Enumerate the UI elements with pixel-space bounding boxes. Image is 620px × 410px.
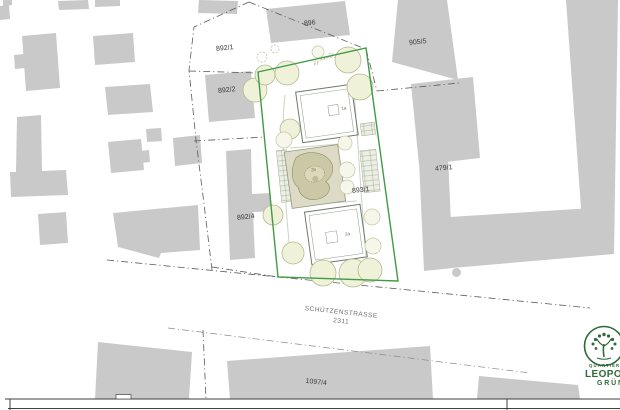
building-footprint (95, 342, 192, 399)
tree-icon (335, 47, 361, 73)
courtyard-garden: 2b (284, 145, 345, 209)
building-footprint (14, 54, 25, 69)
building-footprint (0, 5, 10, 20)
logo-word-quartier: QUARTIER (589, 363, 620, 368)
building-footprint-479-1 (419, 157, 453, 271)
building-footprint (38, 212, 68, 245)
parking-strip (360, 122, 375, 136)
building-footprint-479-1 (411, 77, 480, 165)
tree-icon (365, 238, 381, 254)
building-footprint (146, 128, 162, 142)
tree-icon (339, 162, 355, 178)
building-footprint (140, 150, 150, 163)
building-footprint (3, 0, 12, 6)
tree-icon (364, 209, 380, 225)
tree-icon (282, 242, 304, 264)
frame-tab (116, 395, 131, 400)
building-footprint (105, 84, 153, 115)
building-footprint (108, 139, 144, 173)
roof-opening (328, 104, 339, 115)
tree-icon (347, 74, 373, 100)
roof-opening (326, 231, 338, 243)
tree-icon (310, 260, 336, 286)
logo-word-gruen: GRÜN (597, 378, 620, 387)
tree-icon (358, 258, 382, 282)
tree-icon (276, 132, 292, 148)
tree-icon (275, 61, 299, 85)
building-footprint (93, 33, 135, 65)
building-footprint (95, 0, 120, 7)
logo-word-leopold: LEOPOLD (585, 369, 620, 380)
building-footprint (58, 0, 89, 10)
tree-icon (338, 136, 352, 150)
building-footprint-479-1 (452, 268, 461, 277)
site-plan-canvas: 1a 2b 2a (0, 0, 620, 410)
tree-icon (312, 46, 324, 58)
building-footprint (22, 33, 60, 91)
parcel-label-896: 896 (304, 19, 316, 27)
site-plan-page: 1a 2b 2a (0, 0, 620, 410)
building-footprint (198, 0, 238, 14)
